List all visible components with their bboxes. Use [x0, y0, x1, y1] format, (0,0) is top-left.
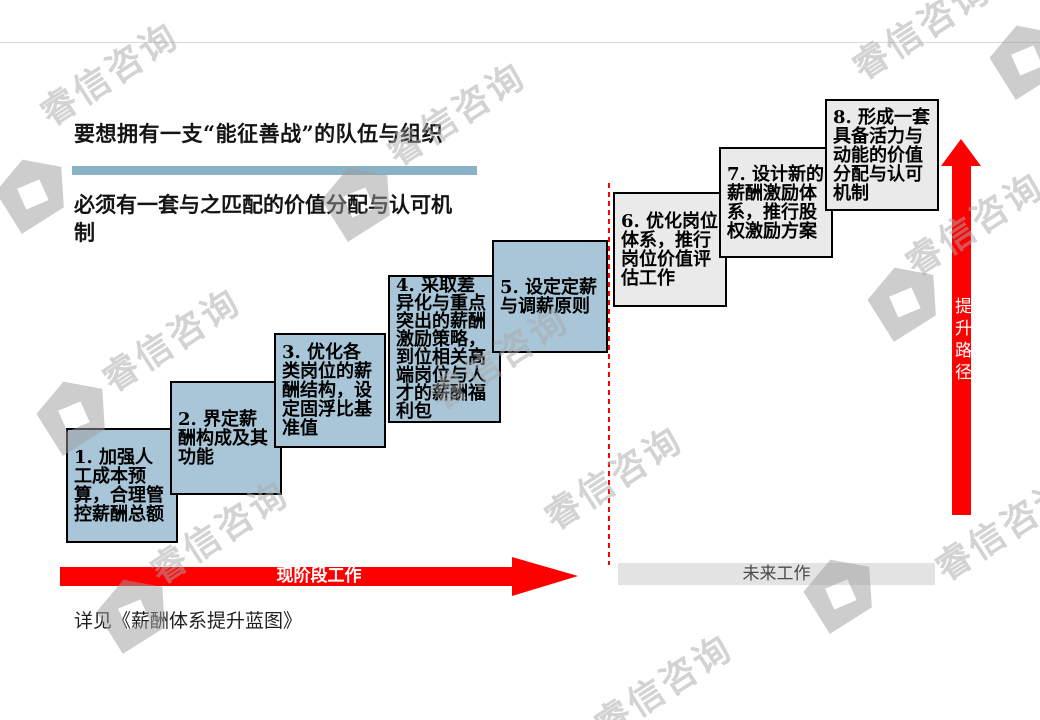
watermark-text: 睿信咨询 [375, 48, 534, 177]
slide-title: 要想拥有一支“能征善战”的队伍与组织 [74, 120, 554, 148]
step-label: 4. 采取差异化与重点突出的薪酬激励策略，到位相关高端岗位与人才的薪酬福利包 [396, 277, 493, 421]
step-label: 6. 优化岗位体系，推行岗位价值评估工作 [621, 212, 719, 288]
watermark-logo-icon [979, 17, 1040, 105]
step-box-3: 3. 优化各类岗位的薪酬结构，设定固浮比基准值 [274, 333, 386, 448]
step-label: 2. 界定薪酬构成及其功能 [178, 410, 274, 467]
phase-divider-dashed-line [608, 183, 610, 565]
future-phase-label: 未来工作 [618, 563, 935, 585]
watermark-logo-icon [0, 151, 73, 239]
watermark-text: 睿信咨询 [582, 620, 741, 720]
step-label: 8. 形成一套具备活力与动能的价值分配与认可机制 [833, 108, 931, 203]
step-box-6: 6. 优化岗位体系，推行岗位价值评估工作 [613, 192, 727, 307]
watermark-text: 睿信咨询 [28, 8, 187, 137]
step-box-5: 5. 设定定薪与调薪原则 [492, 240, 608, 353]
watermark-text: 睿信咨询 [840, 0, 999, 90]
step-box-8: 8. 形成一套具备活力与动能的价值分配与认可机制 [825, 99, 939, 211]
slide-subtitle: 必须有一套与之匹配的价值分配与认可机制 [74, 191, 464, 247]
improvement-path-arrow-head-icon [941, 139, 981, 166]
watermark-text: 睿信咨询 [532, 412, 691, 541]
current-phase-label: 现阶段工作 [60, 567, 578, 586]
top-divider-line [0, 42, 1040, 43]
presentation-slide: 要想拥有一支“能征善战”的队伍与组织 必须有一套与之匹配的价值分配与认可机制 1… [0, 0, 1040, 720]
watermark-text: 睿信咨询 [923, 463, 1040, 592]
step-label: 3. 优化各类岗位的薪酬结构，设定固浮比基准值 [282, 343, 378, 438]
step-box-4: 4. 采取差异化与重点突出的薪酬激励策略，到位相关高端岗位与人才的薪酬福利包 [388, 275, 501, 423]
step-label: 7. 设计新的薪酬激励体系，推行股权激励方案 [727, 165, 825, 241]
step-label: 1. 加强人工成本预算，合理管控薪酬总额 [74, 448, 170, 524]
title-accent-bar [72, 166, 477, 175]
step-label: 5. 设定定薪与调薪原则 [500, 278, 600, 316]
watermark-logo-icon [857, 259, 945, 347]
improvement-path-label: 提升路径 [951, 286, 972, 396]
step-box-1: 1. 加强人工成本预算，合理管控薪酬总额 [66, 428, 178, 543]
step-box-2: 2. 界定薪酬构成及其功能 [170, 381, 282, 495]
step-box-7: 7. 设计新的薪酬激励体系，推行股权激励方案 [719, 147, 833, 258]
footer-note: 详见《薪酬体系提升蓝图》 [74, 606, 302, 633]
